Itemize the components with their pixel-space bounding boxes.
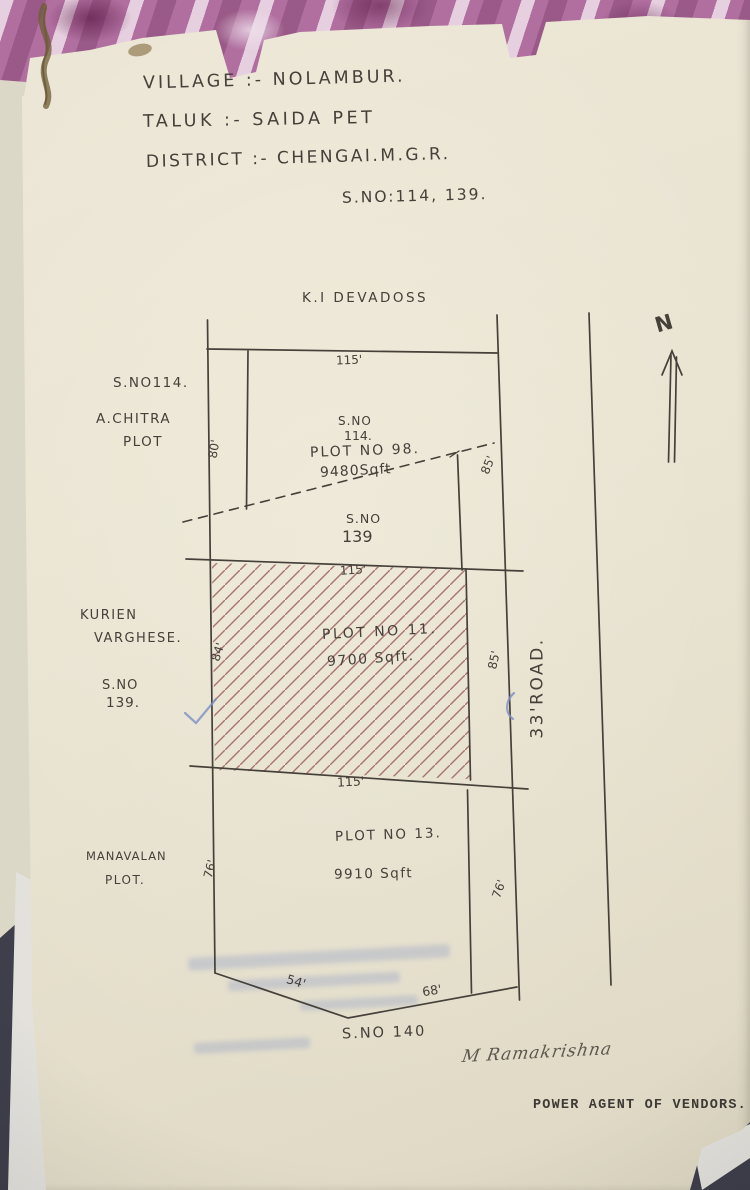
power-agent-typed-title: POWER AGENT OF VENDORS.: [533, 1099, 747, 1113]
road-label: 33'ROAD.: [530, 637, 547, 738]
chitra-plot-divider-line: [247, 351, 249, 509]
road-right-line: [589, 313, 611, 985]
dim-115-mid: 115': [340, 563, 367, 577]
plot98-right-divider-line: [458, 455, 463, 570]
left-label-sno139-2: 139.: [106, 697, 140, 711]
photographed-survey-document: VILLAGE :- NOLAMBUR. TALUK :- SAIDA PET …: [0, 0, 750, 1190]
plot98-sno-2: 114.: [344, 430, 372, 443]
sno139-center-1: S.NO: [346, 513, 381, 526]
left-label-manavalan-1: MANAVALAN: [86, 851, 167, 863]
sno139-center-2: 139: [342, 529, 373, 545]
dim-115-low: 115': [337, 775, 365, 789]
left-label-chitra-1: A.CHITRA: [96, 413, 171, 427]
left-label-kurien-1: KURIEN: [80, 609, 138, 622]
plan-line-drawing: [0, 0, 750, 1190]
north-arrow-shaft: [669, 355, 672, 462]
north-arrow-head: [662, 351, 682, 375]
dim-80-left: 80': [206, 439, 221, 459]
plot13-right-line: [468, 790, 472, 993]
left-label-chitra-2: PLOT: [123, 436, 163, 450]
paper-fragment: [127, 42, 153, 59]
left-label-sno114: S.NO114.: [113, 377, 189, 391]
dim-68-bottom: 68': [421, 983, 442, 998]
plot98-area: 9480Sqft: [320, 462, 392, 480]
left-label-sno139-1: S.NO: [102, 679, 138, 692]
plot13-area: 9910 Sqft: [334, 867, 413, 882]
north-arrow-shaft: [675, 357, 677, 462]
plot98-title: PLOT NO 98.: [310, 442, 420, 460]
north-owner-label: K.I DEVADOSS: [302, 292, 428, 306]
plot-11-hatched-area: [212, 563, 470, 779]
dim-85-right-mid: 85': [486, 650, 502, 671]
header-survey-numbers: S.NO:114, 139.: [342, 187, 488, 206]
dim-115-top: 115': [336, 354, 363, 367]
binding-thread-detail: [43, 8, 47, 104]
plot98-sno-1: S.NO: [338, 415, 372, 427]
left-label-kurien-2: VARGHESE.: [94, 632, 182, 645]
sno140-label: S.NO 140: [342, 1025, 427, 1042]
header-taluk-line: TALUK :- SAIDA PET: [143, 110, 376, 132]
left-label-manavalan-2: PLOT.: [105, 874, 145, 886]
